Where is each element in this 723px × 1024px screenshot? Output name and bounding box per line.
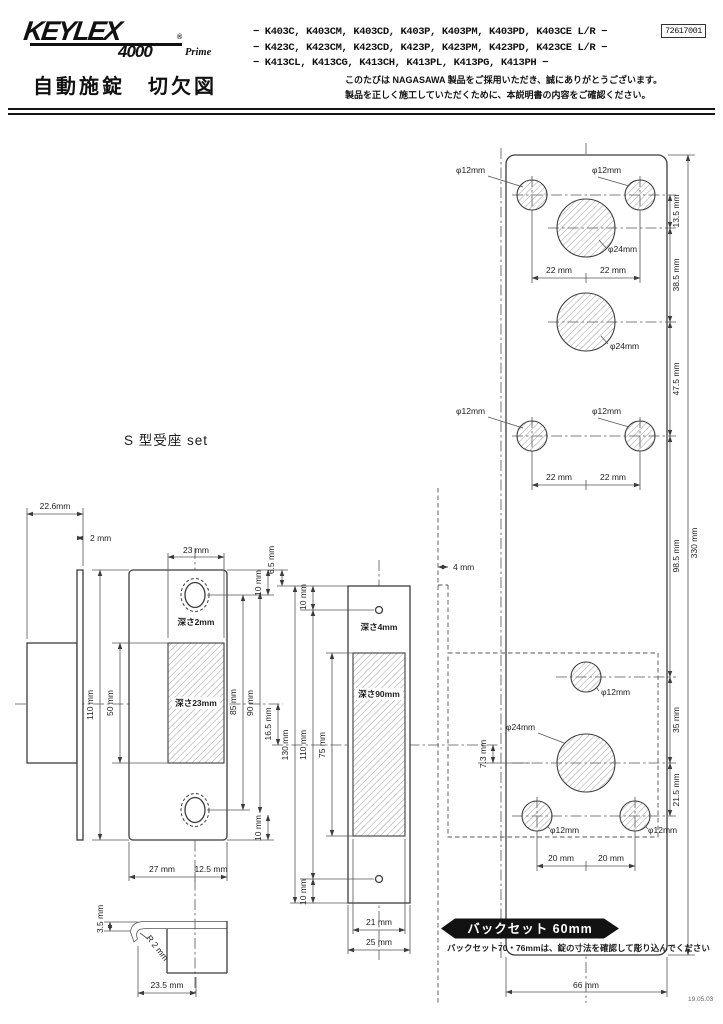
greeting-line: 製品を正しく施工していただくために、本説明書の内容をご確認ください。 [345, 88, 662, 103]
dim-label: 4 mm [453, 562, 474, 572]
dim-label: 12.5 mm [194, 864, 227, 874]
strike-lip-detail: 3.5 mm R 2 mm 23.5 mm [95, 905, 227, 997]
hole-dia-label: φ12mm [648, 825, 677, 835]
dim-label: 10 mm [298, 879, 308, 905]
dim-label: 90 mm [245, 690, 255, 716]
logo-rule [30, 43, 182, 46]
strike-side-view: 22.6mm 2 mm [27, 501, 111, 840]
dim-label: 22.6mm [40, 501, 71, 511]
logo-series: 4000 [118, 42, 152, 62]
model-line: − K413CL, K413CG, K413CH, K413PL, K413PG… [253, 56, 607, 72]
dim-label: 22 mm [600, 472, 626, 482]
dim-label: 35 mm [671, 707, 681, 733]
hole-dia-label: φ12mm [456, 406, 485, 416]
dim-label: 50 mm [105, 690, 115, 716]
keylex-logo: KEYLEX 4000 ® Prime [24, 20, 234, 62]
dim-label: 16.5 mm [263, 707, 273, 740]
screw-depth-label: 深さ4mm [361, 622, 398, 632]
dim-label: 10 mm [253, 570, 263, 596]
dim-label: 47.5 mm [671, 362, 681, 395]
cutting-diagram-canvas: S 型受座 set 22.6mm 2 mm 深さ23mm 深さ2mm 23 [0, 0, 723, 1024]
dim-label: 21 mm [366, 917, 392, 927]
dim-label: 85 mm [228, 689, 238, 715]
dim-label: 330 mm [689, 528, 699, 559]
dim-label: 10 mm [298, 584, 308, 610]
hole-dia-label: φ12mm [592, 165, 621, 175]
hole-dia-label: φ24mm [610, 341, 639, 351]
dim-label: 130 mm [280, 730, 290, 761]
door-face-template: 4 mm φ12mm φ12mm φ24mm φ24mm φ [438, 155, 699, 1005]
cutting-template-sheet: { "header": { "logo": { "brand": "KEYLEX… [0, 0, 723, 1024]
backset-callout: バックセット 60mm バックセット70・76mmは、錠の寸法を確認して彫り込ん… [441, 919, 710, 954]
model-line: − K403C, K403CM, K403CD, K403P, K403PM, … [253, 25, 607, 41]
dim-label: 20 mm [598, 853, 624, 863]
dim-label: 7.3 mm [478, 740, 488, 768]
centerlines [15, 143, 586, 1003]
dim-label: 2 mm [90, 533, 111, 543]
model-number-list: − K403C, K403CM, K403CD, K403P, K403PM, … [253, 25, 607, 72]
header-divider [8, 108, 715, 115]
dim-label: 75 mm [317, 732, 327, 758]
dim-label: 21.5 mm [671, 773, 681, 806]
dim-label: 66 mm [573, 980, 599, 990]
hole-dia-label: φ12mm [592, 406, 621, 416]
dim-label: 13.5 mm [671, 194, 681, 227]
dim-label: 20 mm [548, 853, 574, 863]
logo-suffix: Prime [185, 47, 211, 58]
hole-dia-label: φ12mm [550, 825, 579, 835]
date-code: 19.05.03 [688, 996, 714, 1003]
dim-label: 110 mm [85, 690, 95, 720]
dim-label: 98.5 mm [671, 539, 681, 572]
dim-label: 23.5 mm [150, 980, 183, 990]
strike-set-label: S 型受座 set [124, 433, 208, 448]
dim-label: 3.5 mm [95, 905, 105, 933]
dim-label: 25 mm [366, 937, 392, 947]
dim-label: 6.5 mm [266, 546, 276, 574]
hole-dia-label: φ12mm [601, 687, 630, 697]
hole-depth-label: 深さ2mm [178, 617, 215, 627]
dim-label: 23 mm [183, 545, 209, 555]
page-title: 自動施錠 切欠図 [33, 70, 217, 99]
hole-dia-label: φ24mm [608, 244, 637, 254]
backset-badge-label: バックセット 60mm [467, 922, 593, 936]
dim-label: 22 mm [600, 265, 626, 275]
strike-front-view: 深さ23mm 深さ2mm 23 mm 110 mm 50 mm 27 mm 12… [85, 545, 288, 882]
dim-label: 22 mm [546, 265, 572, 275]
mortise-depth-label: 深さ90mm [358, 689, 400, 699]
dim-label: 10 mm [253, 815, 263, 841]
greeting-line: このたびは NAGASAWA 製品をご採用いただき、誠にありがとうございます。 [345, 73, 662, 88]
pocket-depth-label: 深さ23mm [175, 698, 217, 708]
dim-label: 38.5 mm [671, 258, 681, 291]
door-edge-view: 深さ90mm 深さ4mm 130 mm 10 mm 110 mm 10 mm 7… [277, 584, 410, 954]
registered-mark-icon: ® [177, 34, 182, 41]
backset-note: バックセット70・76mmは、錠の寸法を確認して彫り込んでください [447, 943, 710, 953]
hole-dia-label: φ24mm [506, 722, 535, 732]
hole-dia-label: φ12mm [456, 165, 485, 175]
dim-label: 27 mm [149, 864, 175, 874]
document-number: 72617001 [661, 24, 706, 38]
greeting-text: このたびは NAGASAWA 製品をご採用いただき、誠にありがとうございます。 … [345, 73, 662, 102]
model-line: − K423C, K423CM, K423CD, K423P, K423PM, … [253, 41, 607, 57]
dim-label: 110 mm [298, 730, 308, 760]
dim-label: 22 mm [546, 472, 572, 482]
